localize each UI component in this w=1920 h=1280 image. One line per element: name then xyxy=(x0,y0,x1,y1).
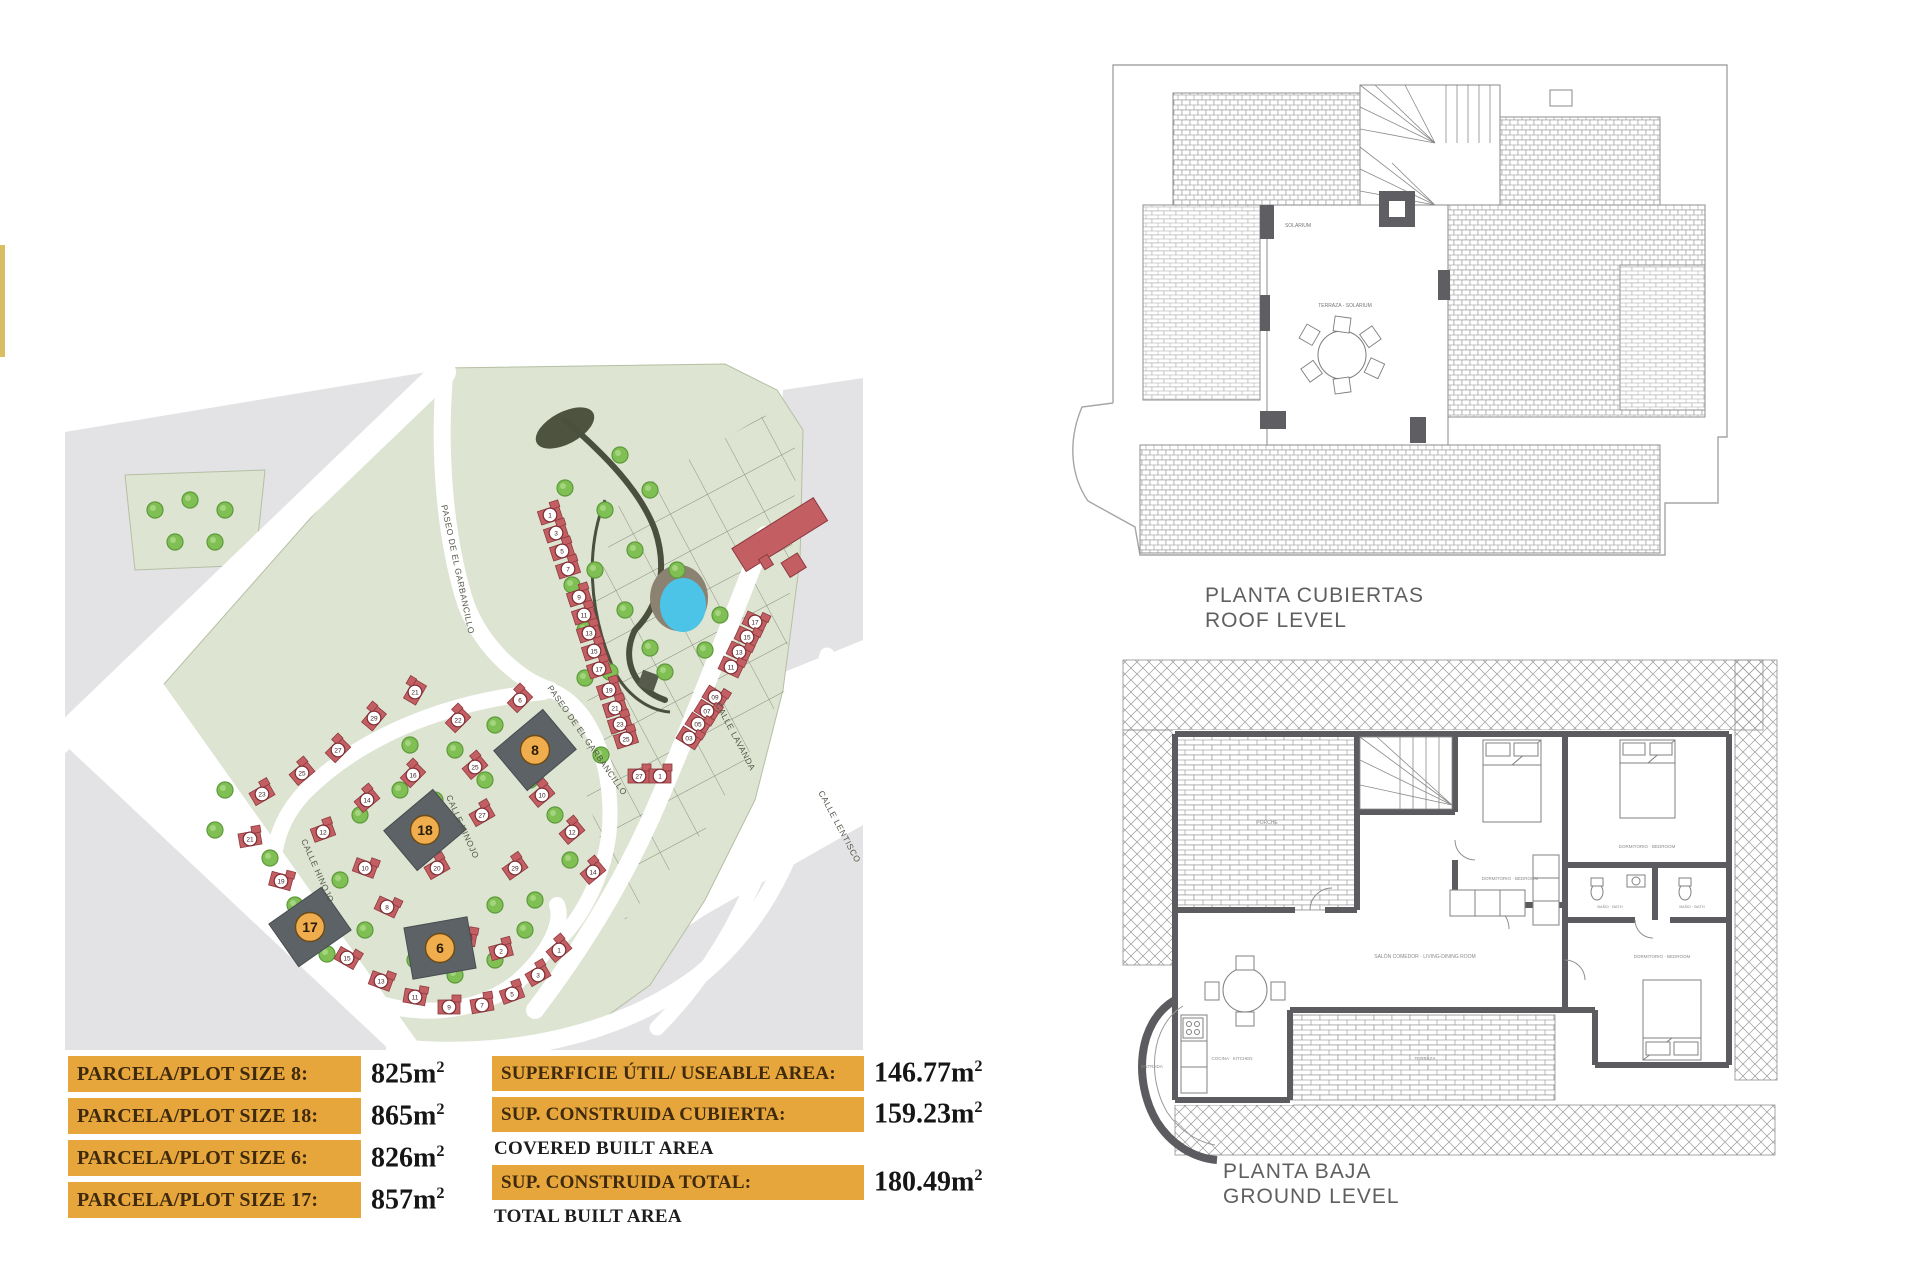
house-number: 05 xyxy=(694,721,702,728)
page-edge-strip xyxy=(0,245,5,357)
house-number: 21 xyxy=(246,836,254,843)
plot-number: 6 xyxy=(436,940,444,956)
tree-highlight xyxy=(265,853,271,859)
built-area-sublabel: COVERED BUILT AREA xyxy=(494,1138,1052,1160)
area-value: 146.77m2 xyxy=(874,1057,982,1089)
ground-plan-title: PLANTA BAJA GROUND LEVEL xyxy=(1223,1160,1400,1210)
plot-size-label: PARCELA/PLOT SIZE 8: xyxy=(68,1056,361,1092)
roof-area-label: TERRAZA - SOLARIUM xyxy=(1318,303,1372,309)
house-number: 27 xyxy=(635,773,643,780)
house-number: 11 xyxy=(412,994,419,1001)
house-number: 27 xyxy=(334,747,342,754)
house-number: 7 xyxy=(480,1002,484,1009)
tree-highlight xyxy=(530,895,536,901)
tree-highlight xyxy=(185,495,191,501)
room-label: DORMITORIO · BEDROOM xyxy=(1634,954,1691,959)
house-number: 9 xyxy=(447,1004,451,1011)
built-area-row: SUP. CONSTRUIDA CUBIERTA:159.23m2 xyxy=(492,1097,1052,1132)
tree-highlight xyxy=(480,775,486,781)
ground-stairs xyxy=(1360,737,1452,809)
room-label: ENTRADA xyxy=(1141,1064,1163,1069)
site-plan-map: 1357911131517192123252711715131109070503… xyxy=(65,360,865,1050)
tree-highlight xyxy=(672,565,678,571)
tree-highlight xyxy=(590,565,596,571)
house-number: 17 xyxy=(751,619,759,626)
plot-size-row: PARCELA/PLOT SIZE 8:825m2 xyxy=(68,1056,548,1092)
built-areas-table: SUPERFICIE ÚTIL/ USEABLE AREA:146.77m2SU… xyxy=(492,1056,1052,1233)
house-number: 19 xyxy=(277,878,285,885)
tree-highlight xyxy=(450,745,456,751)
room-label: PORCHE xyxy=(1256,820,1278,826)
house-number: 3 xyxy=(536,972,540,979)
built-area-row: SUP. CONSTRUIDA TOTAL:180.49m2 xyxy=(492,1165,1052,1200)
house-number: 17 xyxy=(595,666,603,673)
plot-size-label: PARCELA/PLOT SIZE 6: xyxy=(68,1140,361,1176)
tree-highlight xyxy=(700,645,706,651)
house-number: 16 xyxy=(409,772,417,779)
area-value: 865m2 xyxy=(371,1100,444,1132)
area-value: 857m2 xyxy=(371,1184,444,1216)
tree-highlight xyxy=(645,643,651,649)
built-area-label: SUP. CONSTRUIDA TOTAL: xyxy=(492,1165,864,1200)
plot-size-label: PARCELA/PLOT SIZE 18: xyxy=(68,1098,361,1134)
plan-sheet-page: 1357911131517192123252711715131109070503… xyxy=(0,0,1920,1280)
house-number: 1 xyxy=(548,512,552,519)
tree-highlight xyxy=(490,720,496,726)
plot-number: 18 xyxy=(417,822,433,838)
roof-title-en: ROOF LEVEL xyxy=(1205,609,1424,634)
house-number: 22 xyxy=(454,717,462,724)
tree-highlight xyxy=(395,785,401,791)
ground-plan-drawing: PORCHESALÓN COMEDOR · LIVING-DINING ROOM… xyxy=(1095,560,1795,1180)
tree-highlight xyxy=(630,545,636,551)
house-number: 03 xyxy=(685,735,693,742)
house-number: 09 xyxy=(711,694,719,701)
tree-highlight xyxy=(600,505,606,511)
tree-highlight xyxy=(170,537,176,543)
house-number: 13 xyxy=(377,978,385,985)
roof-solarium: SOLARIUMTERRAZA - SOLARIUM xyxy=(1260,191,1450,445)
roof-title-es: PLANTA CUBIERTAS xyxy=(1205,584,1424,609)
built-area-label: SUPERFICIE ÚTIL/ USEABLE AREA: xyxy=(492,1056,864,1091)
house-number: 27 xyxy=(478,812,486,819)
house-number: 12 xyxy=(568,829,576,836)
house-number: 21 xyxy=(611,705,619,712)
room-label: COCINA · KITCHEN xyxy=(1211,1056,1252,1061)
roof-area-label: SOLARIUM xyxy=(1285,223,1311,229)
house-number: 15 xyxy=(343,955,351,962)
tree-highlight xyxy=(560,483,566,489)
house-number: 5 xyxy=(510,991,514,998)
house-number: 14 xyxy=(589,869,597,876)
house-number: 6 xyxy=(518,697,522,704)
plot-size-row: PARCELA/PLOT SIZE 6:826m2 xyxy=(68,1140,548,1176)
tree-highlight xyxy=(490,900,496,906)
house-number: 10 xyxy=(361,865,369,872)
house-number: 29 xyxy=(511,865,519,872)
house-number: 23 xyxy=(616,721,624,728)
plot-sizes-table: PARCELA/PLOT SIZE 8:825m2PARCELA/PLOT SI… xyxy=(68,1056,548,1224)
ground-title-es: PLANTA BAJA xyxy=(1223,1160,1400,1185)
room-label: TERRAZA xyxy=(1414,1056,1435,1061)
tree-highlight xyxy=(150,505,156,511)
tree-highlight xyxy=(550,810,556,816)
house-number: 15 xyxy=(743,634,751,641)
room-label: BAÑO · BATH xyxy=(1597,904,1622,909)
tree-highlight xyxy=(715,610,721,616)
tree-highlight xyxy=(615,450,621,456)
house-number: 29 xyxy=(370,715,378,722)
tree-highlight xyxy=(660,667,666,673)
house-number: 14 xyxy=(363,797,371,804)
area-value: 180.49m2 xyxy=(874,1166,982,1198)
house-number: 23 xyxy=(258,791,266,798)
area-value: 826m2 xyxy=(371,1142,444,1174)
house-number: 15 xyxy=(590,648,598,655)
house-number: 12 xyxy=(319,829,327,836)
tree-highlight xyxy=(360,925,366,931)
house-number: 25 xyxy=(622,736,630,743)
room-label: DORMITORIO · BEDROOM xyxy=(1619,844,1676,849)
house-number: 2 xyxy=(499,948,503,955)
house-number: 11 xyxy=(581,612,588,619)
house-number: 7 xyxy=(566,566,570,573)
ground-title-en: GROUND LEVEL xyxy=(1223,1185,1400,1210)
tree-highlight xyxy=(565,855,571,861)
house-number: 21 xyxy=(411,689,419,696)
built-area-label: SUP. CONSTRUIDA CUBIERTA: xyxy=(492,1097,864,1132)
room-label: DORMITORIO · BEDROOM xyxy=(1482,876,1539,881)
house-number: 1 xyxy=(658,773,662,780)
room-label: BAÑO · BATH xyxy=(1679,904,1704,909)
roof-plan-title: PLANTA CUBIERTAS ROOF LEVEL xyxy=(1205,584,1424,634)
tree-highlight xyxy=(210,825,216,831)
tree-highlight xyxy=(220,505,226,511)
plot-size-label: PARCELA/PLOT SIZE 17: xyxy=(68,1182,361,1218)
house-number: 5 xyxy=(560,548,564,555)
roof-plan-drawing: SOLARIUMTERRAZA - SOLARIUM xyxy=(930,55,1740,575)
room-label: SALÓN COMEDOR · LIVING-DINING ROOM xyxy=(1374,953,1475,960)
plot-number: 17 xyxy=(302,919,318,935)
house-number: 25 xyxy=(298,770,306,777)
area-value: 825m2 xyxy=(371,1058,444,1090)
tree-highlight xyxy=(567,580,573,586)
tree-highlight xyxy=(335,875,341,881)
highlighted-plot: 6 xyxy=(404,917,476,979)
tree-highlight xyxy=(220,785,226,791)
built-area-row: SUPERFICIE ÚTIL/ USEABLE AREA:146.77m2 xyxy=(492,1056,1052,1091)
pond xyxy=(660,578,706,632)
tree-highlight xyxy=(620,605,626,611)
house-number: 9 xyxy=(577,594,581,601)
house-number: 1 xyxy=(557,947,561,954)
tree-highlight xyxy=(645,485,651,491)
plot-size-row: PARCELA/PLOT SIZE 17:857m2 xyxy=(68,1182,548,1218)
house-number: 25 xyxy=(471,764,479,771)
tree-highlight xyxy=(580,673,586,679)
house-number: 8 xyxy=(385,904,389,911)
house-number: 3 xyxy=(554,530,558,537)
house-number: 10 xyxy=(538,792,546,799)
house-number: 11 xyxy=(728,664,735,671)
plot-number: 8 xyxy=(531,742,539,758)
house-number: 19 xyxy=(605,687,613,694)
tree-highlight xyxy=(210,537,216,543)
house-number: 13 xyxy=(585,630,593,637)
house-number: 20 xyxy=(433,865,441,872)
area-value: 159.23m2 xyxy=(874,1098,982,1130)
house-number: 07 xyxy=(703,708,711,715)
tree-highlight xyxy=(520,925,526,931)
plot-size-row: PARCELA/PLOT SIZE 18:865m2 xyxy=(68,1098,548,1134)
house-number: 13 xyxy=(735,649,743,656)
tree-highlight xyxy=(355,810,361,816)
built-area-sublabel: TOTAL BUILT AREA xyxy=(494,1206,1052,1228)
tree-highlight xyxy=(405,740,411,746)
